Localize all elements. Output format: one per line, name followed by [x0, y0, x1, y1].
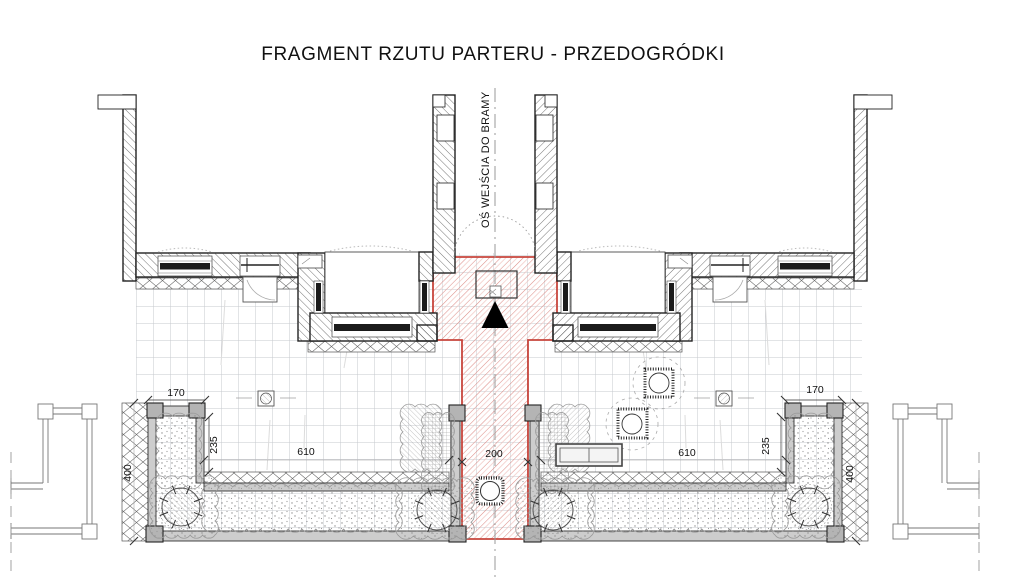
dim-610-right: 610	[678, 447, 696, 459]
fence-post	[38, 404, 53, 419]
fence-post	[82, 524, 97, 539]
balcony-dashed-arc	[158, 248, 212, 252]
dim-170-left: 170	[167, 387, 185, 399]
dim-200-path: 200	[485, 448, 503, 460]
bay-window	[334, 324, 410, 331]
drawing-title: FRAGMENT RZUTU PARTERU - PRZEDOGRÓDKI	[261, 43, 724, 65]
gate-wall-niche	[437, 115, 454, 141]
square-planter-tree	[622, 414, 642, 434]
dim-170-right: 170	[806, 384, 824, 396]
dim-400-right: 400	[844, 465, 856, 483]
dim-400-left: 400	[122, 464, 134, 482]
dim-610-left: 610	[297, 446, 315, 458]
fence	[11, 404, 97, 578]
wall-notch	[98, 95, 136, 109]
bay-side-window	[316, 283, 321, 311]
side-wall	[123, 95, 136, 281]
axis-label: OŚ WEJŚCIA DO BRAMY	[479, 91, 492, 228]
paving-marker-circle	[261, 393, 272, 404]
floor-plan-drawing: FRAGMENT RZUTU PARTERU - PRZEDOGRÓDKI OŚ…	[0, 0, 1024, 584]
gate-wall-niche	[437, 183, 454, 209]
dim-235-left: 235	[208, 436, 220, 454]
balcony-dashed-arc	[330, 246, 412, 251]
floor-plan-page: FRAGMENT RZUTU PARTERU - PRZEDOGRÓDKI OŚ…	[0, 0, 1024, 584]
door-step	[243, 277, 277, 302]
dim-235-right: 235	[760, 437, 772, 455]
planting-bed	[202, 484, 403, 533]
door-opening	[240, 256, 280, 276]
path-tree	[481, 482, 500, 501]
fence-post	[82, 404, 97, 419]
bay-side-window	[422, 283, 427, 311]
bay-recess	[325, 252, 419, 313]
square-planter-tree	[649, 373, 669, 393]
window	[160, 263, 210, 270]
